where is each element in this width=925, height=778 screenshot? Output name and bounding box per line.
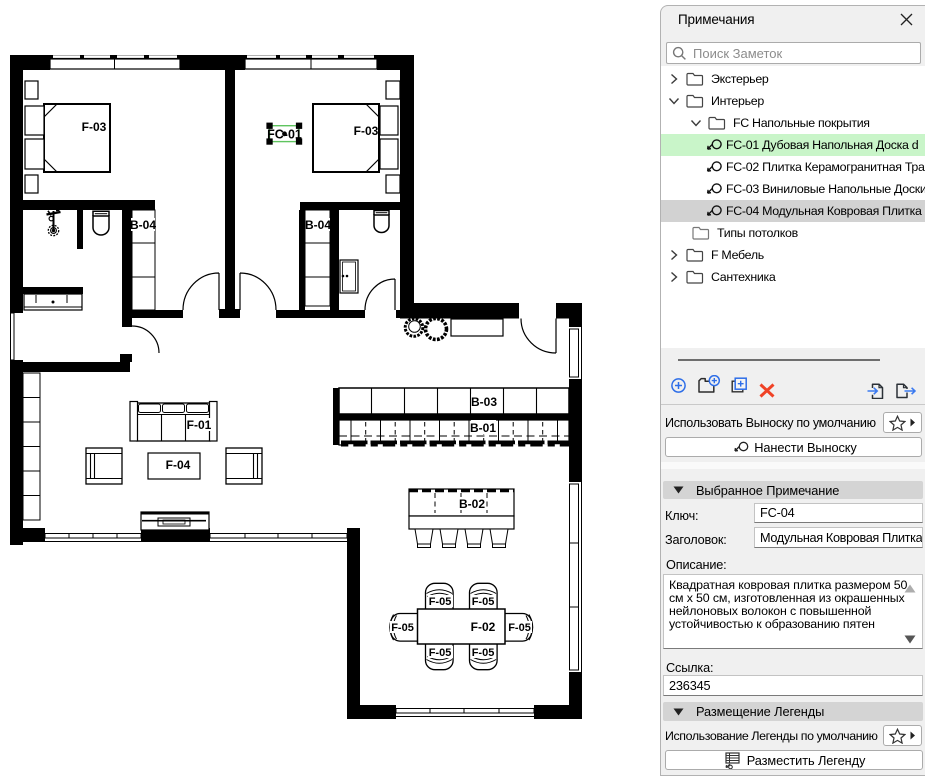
svg-text:B-01: B-01 [470, 421, 496, 435]
svg-text:F-04: F-04 [166, 458, 191, 472]
svg-text:F-05: F-05 [472, 647, 495, 659]
svg-text:B-04: B-04 [305, 218, 331, 232]
svg-text:F-05: F-05 [391, 622, 414, 634]
svg-text:F-05: F-05 [472, 596, 495, 608]
svg-text:B-04: B-04 [130, 218, 156, 232]
svg-text:F-05: F-05 [429, 596, 452, 608]
svg-text:F-05: F-05 [508, 622, 531, 634]
svg-text:F-02: F-02 [471, 620, 496, 634]
svg-text:B-03: B-03 [471, 395, 497, 409]
svg-text:F-05: F-05 [429, 647, 452, 659]
svg-text:B-02: B-02 [459, 497, 485, 511]
svg-text:F-01: F-01 [187, 418, 212, 432]
svg-text:F-03: F-03 [82, 120, 107, 134]
svg-text:F-03: F-03 [354, 124, 379, 138]
